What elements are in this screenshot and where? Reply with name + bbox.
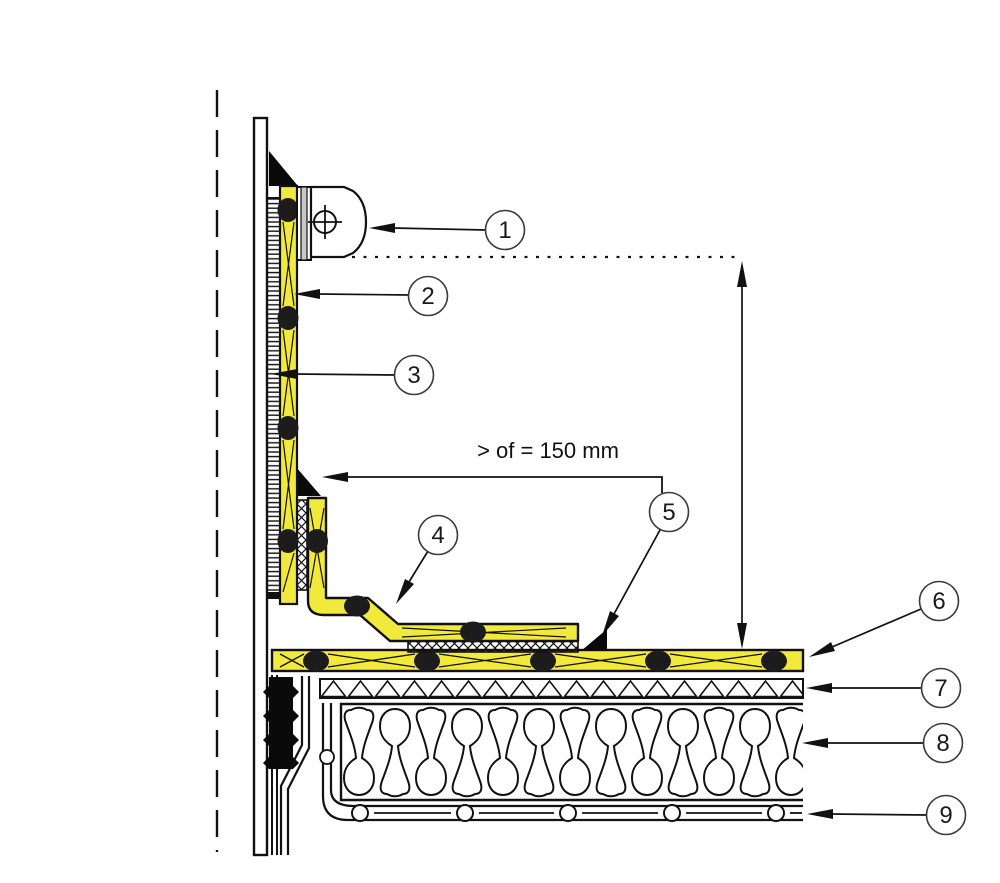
svg-text:4: 4	[431, 522, 444, 549]
parapet-wall	[254, 118, 267, 855]
callout-6: 6	[809, 582, 959, 658]
svg-text:5: 5	[662, 499, 675, 526]
svg-text:8: 8	[936, 730, 949, 757]
clamping-profile	[297, 187, 366, 260]
dimension-label: > of = 150 mm	[477, 438, 619, 463]
construction-detail-drawing: > of = 150 mm 1 2 3 4 5 6	[0, 0, 1000, 883]
sealant-wedge-top	[269, 151, 298, 186]
sealant-wedge-corner	[296, 467, 321, 496]
compressible-filler	[263, 677, 299, 769]
callout-7: 7	[806, 669, 961, 708]
adhesive-strip-horizontal	[408, 641, 578, 652]
svg-text:1: 1	[498, 217, 511, 244]
callout-1: 1	[369, 211, 525, 250]
svg-text:7: 7	[934, 675, 947, 702]
deck-fastener-icon	[320, 750, 334, 764]
dimension-150mm: > of = 150 mm	[322, 438, 662, 493]
insulation-layer	[341, 704, 803, 800]
callout-4: 4	[396, 516, 458, 605]
vertical-membrane-strip	[278, 186, 299, 604]
svg-text:2: 2	[421, 283, 434, 310]
callout-8: 8	[802, 724, 963, 763]
field-membrane	[272, 650, 803, 672]
vertical-dimension-arrow	[737, 261, 747, 649]
callout-5: 5	[602, 493, 689, 637]
callout-9: 9	[807, 796, 966, 835]
separation-layer	[320, 679, 803, 698]
svg-text:9: 9	[939, 802, 952, 829]
callout-2: 2	[294, 277, 448, 316]
svg-text:3: 3	[407, 362, 420, 389]
sealant-wedge-field	[581, 629, 607, 651]
svg-text:6: 6	[932, 588, 945, 615]
